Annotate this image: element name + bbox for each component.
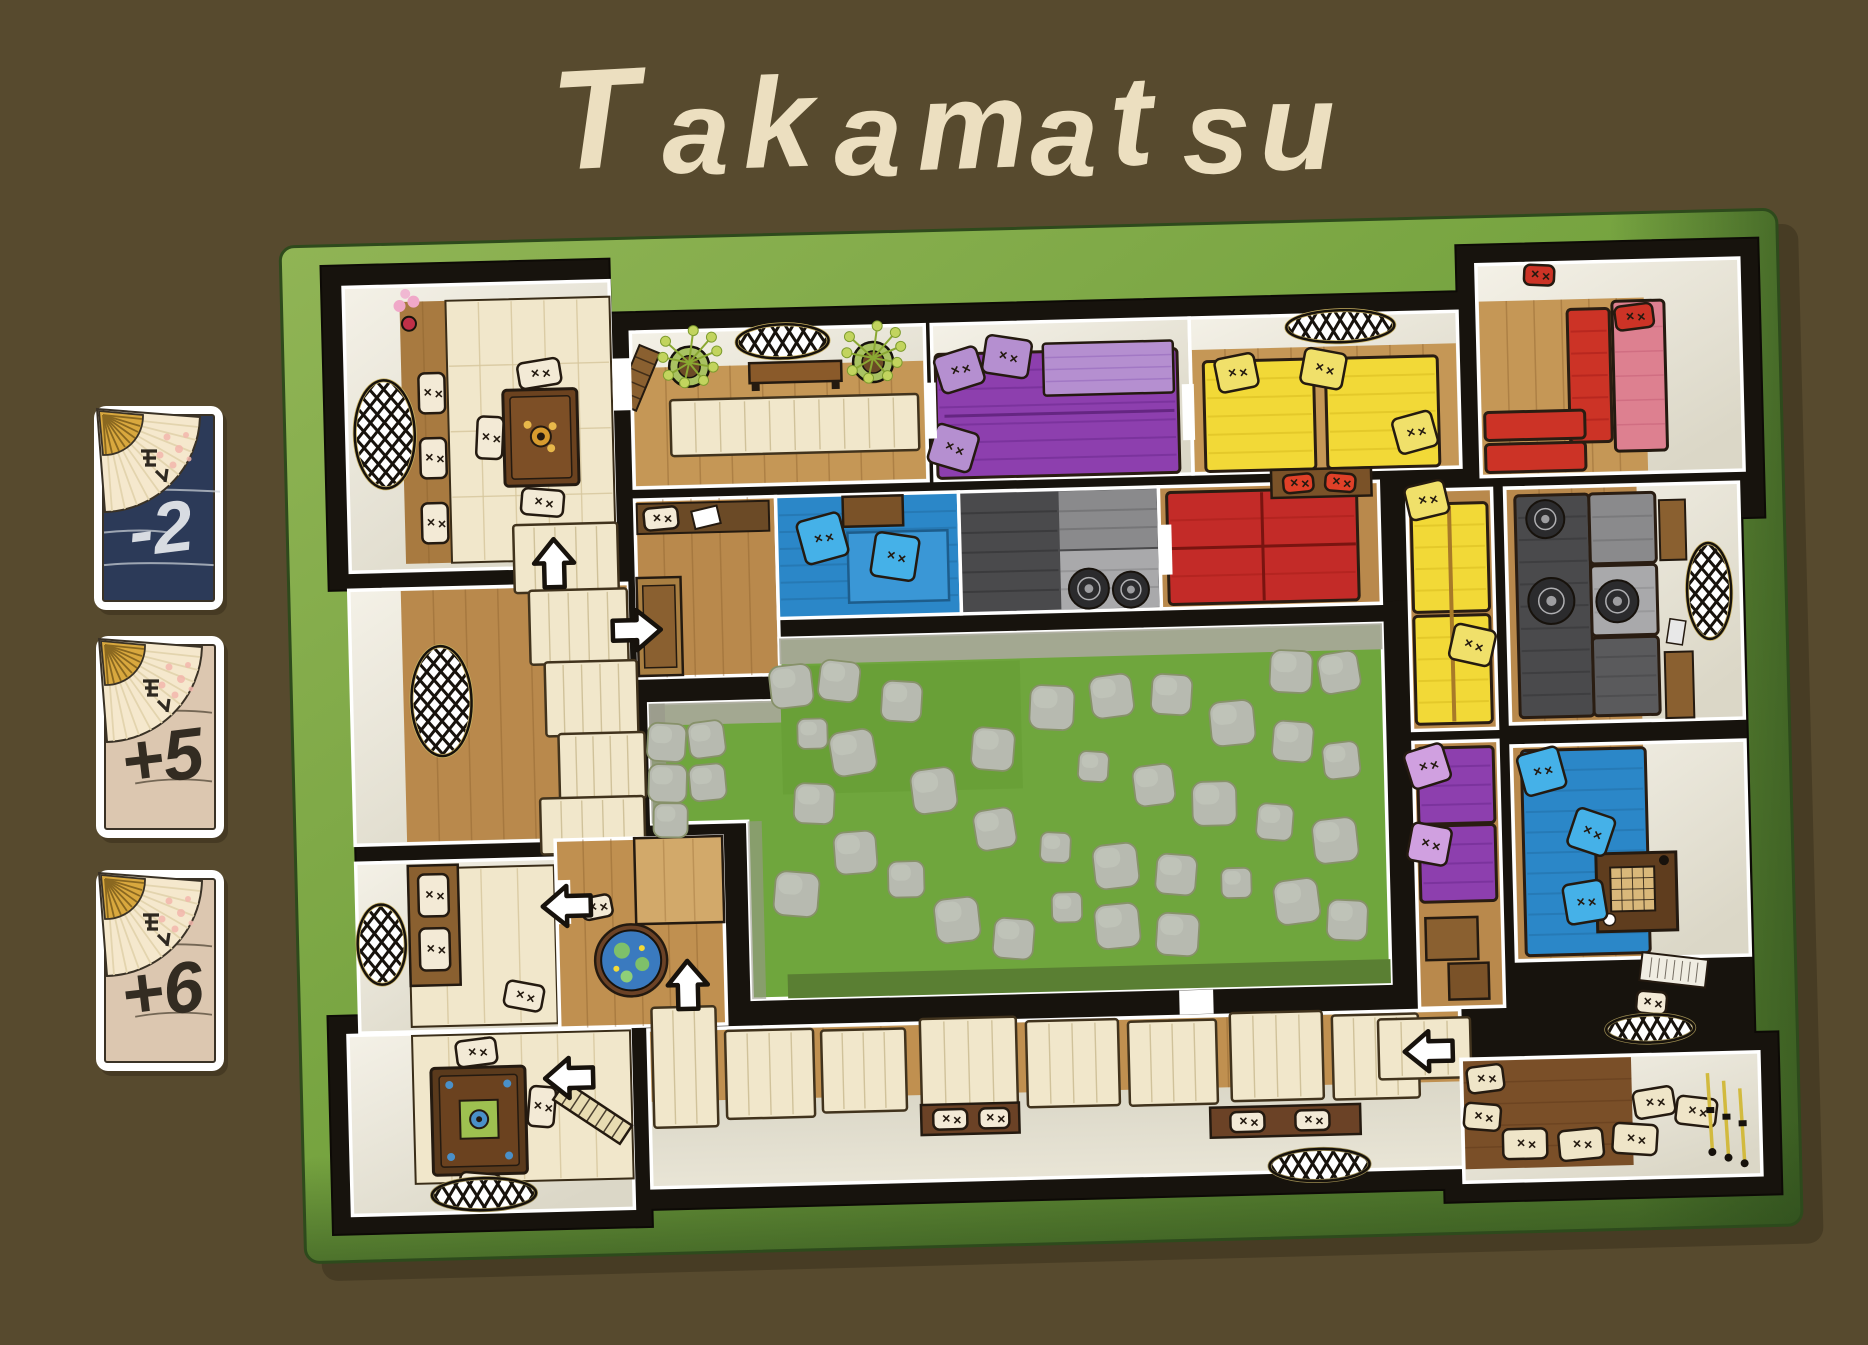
svg-text:u: u [1258, 58, 1336, 197]
svg-text:a: a [1029, 66, 1100, 202]
svg-text:s: s [1181, 64, 1252, 200]
svg-text:a: a [833, 66, 904, 202]
svg-text:m: m [914, 55, 1029, 197]
svg-text:k: k [740, 50, 822, 196]
svg-text:+5: +5 [117, 713, 209, 803]
svg-text:-2: -2 [124, 485, 197, 572]
svg-text:+6: +6 [117, 946, 209, 1036]
svg-text:a: a [661, 64, 732, 200]
